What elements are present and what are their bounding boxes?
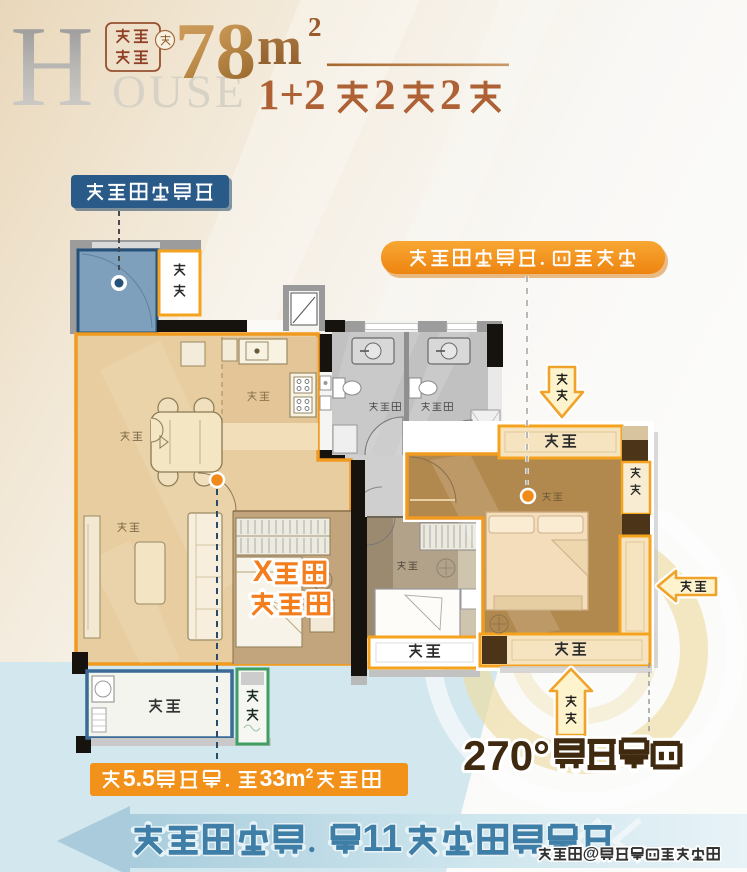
svg-text:2: 2 bbox=[374, 72, 396, 119]
svg-text:1+2: 1+2 bbox=[258, 72, 326, 119]
svg-text:78: 78 bbox=[175, 6, 256, 96]
svg-text:2: 2 bbox=[308, 12, 322, 42]
svg-text:X: X bbox=[253, 555, 273, 588]
svg-text:5.5: 5.5 bbox=[123, 765, 155, 791]
svg-text:@: @ bbox=[583, 844, 600, 863]
svg-text:H: H bbox=[10, 3, 94, 131]
svg-text:270°: 270° bbox=[463, 732, 550, 779]
svg-text:2: 2 bbox=[440, 72, 462, 119]
svg-text:33m: 33m bbox=[260, 765, 306, 791]
svg-text:m: m bbox=[257, 16, 302, 76]
svg-text:11: 11 bbox=[362, 818, 402, 860]
svg-text:2: 2 bbox=[306, 765, 314, 781]
